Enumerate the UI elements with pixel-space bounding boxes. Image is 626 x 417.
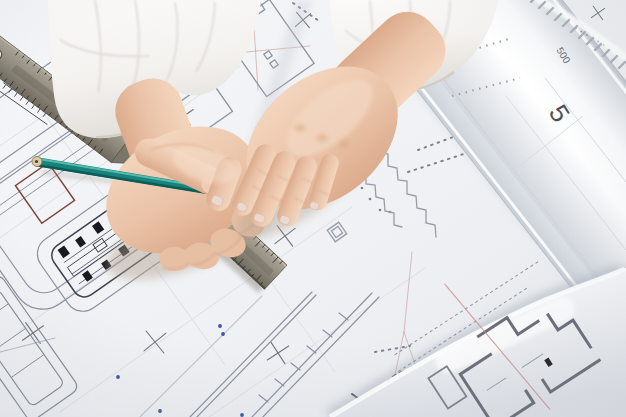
photo-architect-blueprints: 500 5	[0, 0, 626, 417]
vignette-overlay	[0, 0, 626, 417]
photo-canvas: 500 5	[0, 0, 626, 417]
